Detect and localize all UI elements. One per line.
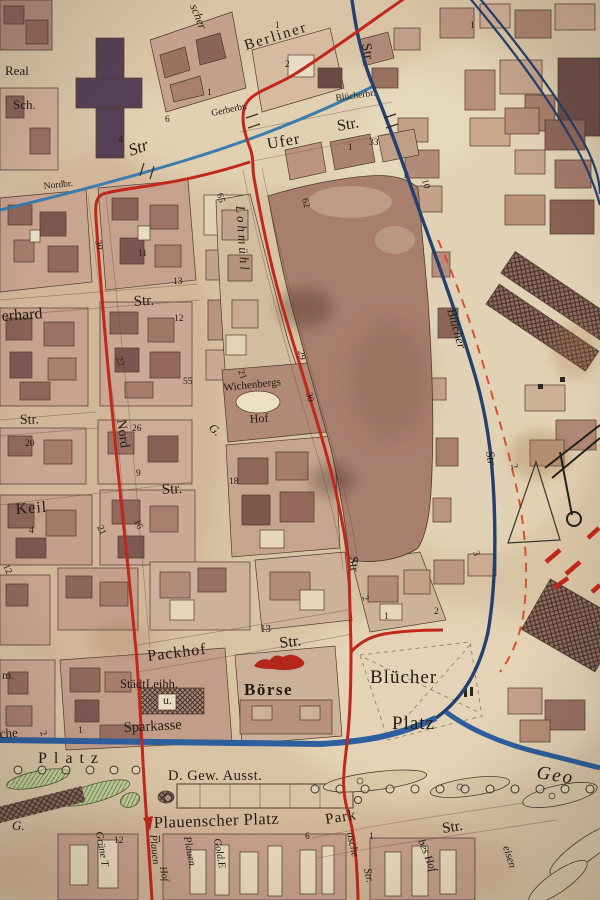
label-staedt-leihhaus: StädtLeihh. (120, 677, 178, 691)
label-realschule-1: Real (5, 63, 29, 78)
map-label: 2 (285, 60, 290, 70)
label-bluecher-platz-1: Blücher (370, 667, 437, 688)
map-label: Str (346, 556, 363, 573)
map-label: m. (2, 668, 14, 682)
map-label: 13 (260, 623, 272, 635)
map-label: 1 (384, 612, 389, 622)
map-label: che (0, 725, 18, 741)
map-label: 2 (434, 607, 439, 617)
map-label: Str (483, 450, 499, 467)
map-label: G. (12, 818, 25, 833)
street-label-gerhard: erhard (1, 305, 43, 325)
map-label: 20 (25, 439, 35, 449)
map-label: 26 (132, 424, 142, 434)
map-label: 4 (29, 526, 34, 536)
map-label: Str. (278, 632, 302, 652)
map-label: Str. (133, 293, 155, 310)
map-label: 13 (173, 277, 183, 287)
label-sparkasse: Sparkasse (123, 717, 182, 736)
map-label: 1 (157, 835, 162, 845)
map-label: 1 (369, 832, 374, 842)
map-label: 1 (470, 21, 475, 31)
map-label: Str. (20, 412, 40, 428)
map-label: 12 (174, 314, 184, 324)
map-label: 1 (78, 726, 83, 736)
map-label: 1 (207, 88, 212, 98)
label-bluecher-platz-2: Platz (392, 713, 435, 734)
map-label: 18 (229, 477, 239, 487)
map-label: 9 (136, 469, 141, 479)
map-label: 55 (183, 377, 193, 387)
map-label: u. (163, 693, 172, 707)
map-label: 4 (118, 135, 123, 145)
map-label: 12 (114, 836, 124, 846)
map-label: Hof (249, 411, 269, 426)
map-label: 1 (275, 21, 280, 31)
map-label: 6 (165, 115, 170, 125)
map-label: 11 (138, 249, 147, 259)
label-realschule-2: Sch. (13, 97, 36, 112)
label-platz-west: Platz (38, 750, 105, 767)
map-label: 1 (348, 143, 353, 153)
label-boerse: Börse (244, 680, 293, 699)
street-label-keil: Keil (15, 499, 48, 518)
map-label: Str. (441, 818, 464, 837)
map-label: Str. (161, 481, 182, 498)
map-label: 6 (305, 832, 310, 842)
map-label: 33 (369, 138, 379, 148)
label-gewerbe-ausstellung: D. Gew. Ausst. (168, 768, 262, 784)
map-canvas: BerlinerscherStrGerberbr.Blücherbr.UferS… (0, 0, 600, 900)
street-label-str-top: Str (358, 42, 376, 61)
historic-city-map: BerlinerscherStrGerberbr.Blücherbr.UferS… (0, 0, 600, 900)
